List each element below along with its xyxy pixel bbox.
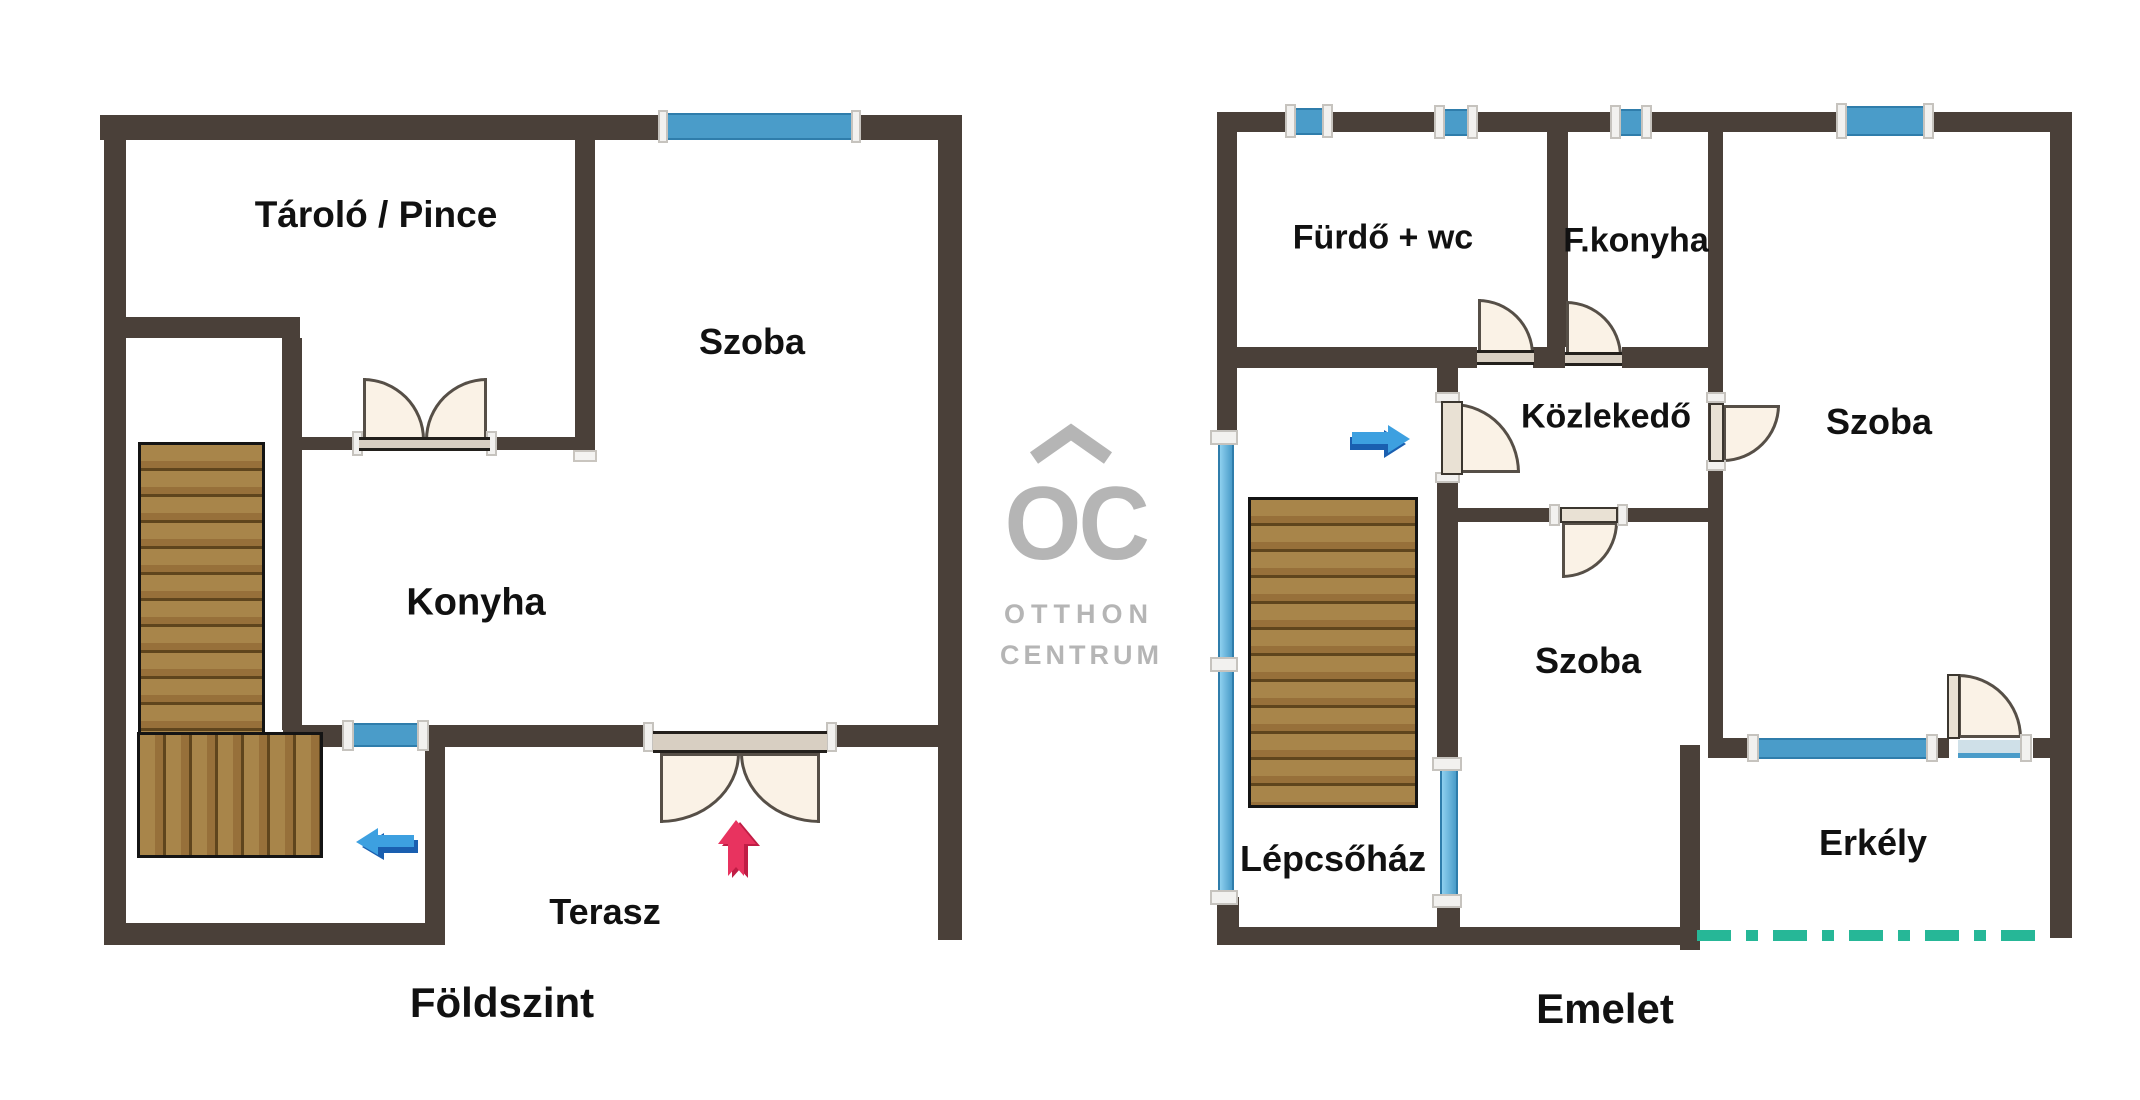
room-label-kitchenette: F.konyha	[1563, 222, 1708, 261]
wall	[1217, 347, 1477, 368]
window	[1444, 109, 1469, 136]
door-swing	[1723, 405, 1780, 462]
double-door-left-leaf	[363, 378, 425, 440]
room-label-storage: Tároló / Pince	[255, 194, 498, 236]
door-frame-tick	[826, 722, 837, 752]
wall	[836, 725, 940, 747]
door-swing	[1478, 299, 1534, 355]
wall	[1217, 112, 1237, 432]
room-label-stairwell: Lépcsőház	[1240, 838, 1426, 880]
logo-name-line2: CENTRUM	[1000, 642, 1148, 669]
window	[1218, 670, 1234, 892]
wall	[425, 747, 445, 937]
wall	[104, 115, 126, 945]
wall	[1437, 927, 1700, 945]
wall	[298, 437, 360, 450]
wall	[1437, 482, 1458, 758]
door-leaf	[1560, 507, 1618, 523]
logo-roof-icon	[1028, 424, 1114, 462]
window-frame-tick	[1285, 104, 1296, 138]
wall	[938, 115, 962, 940]
window-frame-tick	[1923, 103, 1934, 139]
stair-direction-arrow-right-icon	[1346, 422, 1412, 460]
door-frame-tick	[1617, 504, 1628, 526]
window-frame-tick	[1926, 734, 1938, 762]
wall	[104, 317, 300, 338]
window-frame-tick	[1432, 894, 1462, 908]
stair-direction-arrow-left-icon	[354, 826, 420, 862]
double-door-right-leaf	[740, 753, 820, 823]
stair-landing	[137, 732, 323, 858]
window	[667, 113, 852, 140]
wall	[429, 725, 653, 747]
wall	[575, 140, 595, 450]
door-sill	[1477, 350, 1534, 365]
window-frame-tick	[1210, 657, 1238, 672]
window	[1218, 443, 1234, 659]
window-frame-tick	[1210, 430, 1238, 445]
wall	[1680, 745, 1700, 950]
room-label-bathroom: Fürdő + wc	[1293, 219, 1473, 258]
floor-title-ground: Földszint	[410, 979, 594, 1027]
wall	[1217, 927, 1460, 945]
wall	[1458, 508, 1553, 522]
window	[1620, 109, 1642, 136]
wall	[2033, 738, 2053, 758]
room-label-balcony: Erkély	[1819, 822, 1927, 864]
door-frame-tick	[1549, 504, 1560, 526]
window	[1845, 106, 1924, 136]
door-swing	[1562, 522, 1618, 578]
window-frame-tick	[1322, 104, 1333, 138]
window-frame-tick	[1210, 890, 1238, 905]
room-label-room-right: Szoba	[1826, 401, 1932, 443]
staircase	[138, 442, 265, 735]
double-door-right-leaf	[425, 378, 487, 440]
double-door-left-leaf	[660, 753, 740, 823]
window-frame-tick	[1747, 734, 1759, 762]
wall-end-cap	[573, 450, 597, 462]
window	[1440, 769, 1458, 897]
door-swing	[1958, 674, 2022, 738]
room-label-hall: Közlekedő	[1521, 398, 1691, 437]
wall	[1622, 347, 1712, 368]
room-label-room-middle: Szoba	[1535, 640, 1641, 682]
door-leaf	[1947, 674, 1960, 739]
window-frame-tick	[1836, 103, 1847, 139]
floor-plan-canvas: Tároló / Pince Szoba Konyha Terasz Földs…	[0, 0, 2140, 1100]
room-label-kitchen: Konyha	[406, 582, 545, 625]
entrance-arrow-icon	[714, 820, 762, 882]
floor-title-upper: Emelet	[1536, 985, 1674, 1033]
logo-monogram: OC	[1005, 472, 1138, 576]
room-label-room: Szoba	[699, 321, 805, 363]
window-frame-tick	[2020, 734, 2032, 762]
door-lintel	[653, 731, 827, 753]
door-leaf	[1441, 401, 1463, 475]
window-frame-tick	[1434, 105, 1445, 139]
wall	[1627, 508, 1712, 522]
window-frame-tick	[1467, 105, 1478, 139]
logo-name-line1: OTTHON	[1004, 601, 1144, 628]
window-frame-tick	[1610, 105, 1621, 139]
wall	[282, 338, 302, 730]
window-frame-tick	[417, 720, 429, 751]
door-swing	[1566, 301, 1622, 357]
window-frame-tick	[1641, 105, 1652, 139]
window-frame-tick	[342, 720, 354, 751]
balcony-door-threshold	[1958, 740, 2022, 758]
door-swing	[1453, 403, 1520, 473]
window	[1295, 108, 1323, 135]
window	[1758, 738, 1928, 759]
door-sill	[1565, 352, 1622, 366]
window	[353, 723, 418, 747]
window-frame-tick	[658, 110, 668, 143]
wall	[489, 437, 587, 450]
staircase	[1248, 497, 1418, 808]
wall	[104, 923, 445, 945]
wall	[2050, 112, 2072, 938]
door-sill	[359, 437, 490, 451]
door-frame-tick	[1706, 392, 1726, 403]
window-frame-tick	[851, 110, 861, 143]
wall	[1533, 347, 1565, 368]
room-label-terrace: Terasz	[549, 891, 660, 933]
door-leaf	[1709, 403, 1724, 462]
balcony-open-edge	[1697, 930, 2050, 941]
window-frame-tick	[1432, 757, 1462, 771]
